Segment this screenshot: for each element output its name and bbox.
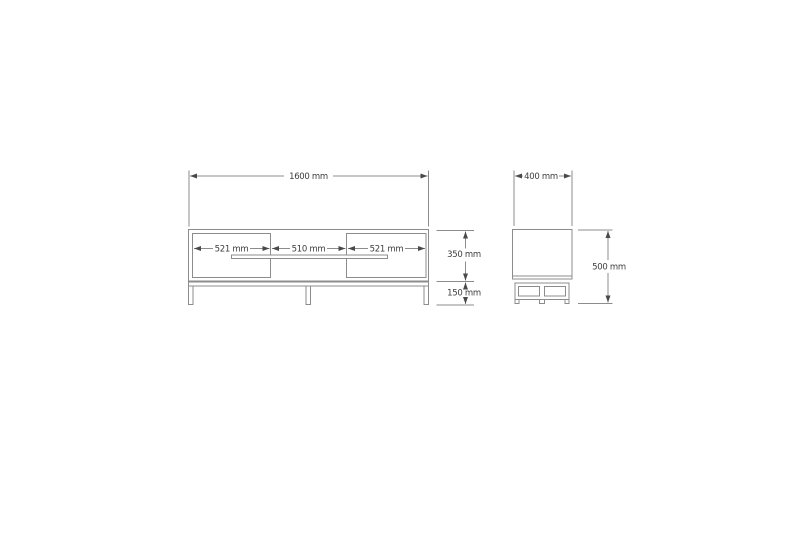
dim-side-overall-height: 500 mm: [578, 230, 626, 304]
dim-label-middle-width: 510 mm: [292, 245, 326, 255]
front-leg-right: [424, 286, 429, 305]
side-foot-left: [515, 300, 519, 304]
side-foot-right: [565, 300, 569, 304]
dim-label-leg-height: 150 mm: [447, 289, 481, 299]
dim-front-left-door: 521 mm: [194, 245, 270, 255]
front-view: [189, 230, 429, 305]
side-foot-middle: [540, 300, 545, 304]
dim-label-right-door-width: 521 mm: [370, 245, 404, 255]
dim-label-overall-height: 500 mm: [592, 263, 626, 273]
front-leg-left: [189, 286, 194, 305]
dim-front-middle-section: 510 mm: [272, 245, 346, 255]
front-base-rail: [189, 282, 429, 286]
dim-front-body-height: 350 mm: [437, 231, 481, 282]
dim-label-depth: 400 mm: [524, 172, 558, 182]
dim-label-body-height: 350 mm: [447, 250, 481, 260]
technical-drawing-page: 1600 mm 521 mm 510 mm 521 mm 350 mm: [0, 0, 800, 533]
side-base-opening-left: [519, 287, 540, 297]
dim-side-depth: 400 mm: [514, 171, 572, 227]
dim-label-overall-width: 1600 mm: [289, 172, 328, 182]
dim-front-overall-width: 1600 mm: [189, 171, 429, 227]
side-base-opening-right: [545, 287, 566, 297]
front-leg-middle: [306, 286, 311, 305]
side-cabinet-outline: [513, 230, 573, 280]
dim-front-right-door: 521 mm: [348, 245, 425, 255]
drawing-canvas: 1600 mm 521 mm 510 mm 521 mm 350 mm: [0, 0, 800, 533]
dim-front-leg-height: 150 mm: [437, 283, 481, 306]
front-handle-bar: [232, 255, 388, 259]
side-base-frame: [515, 283, 569, 300]
side-view: [513, 230, 573, 304]
dim-label-left-door-width: 521 mm: [215, 245, 249, 255]
